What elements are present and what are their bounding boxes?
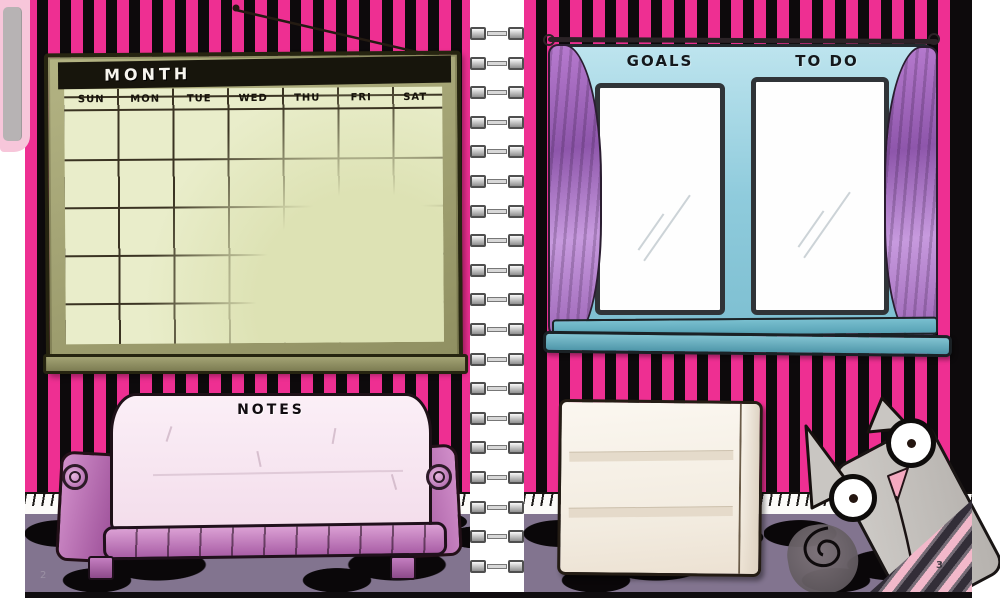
cat-pupil <box>849 494 858 503</box>
day-header-tue: TUE <box>172 88 226 108</box>
planner-spread: MONTH SUN MON TUE WED THU FRI SAT GOALS … <box>0 0 1000 598</box>
couch-sketch-mark <box>166 426 173 442</box>
couch-backrest: NOTES <box>110 393 432 533</box>
binding-ring-icon <box>470 86 524 99</box>
goals-pane <box>595 83 725 315</box>
goals-label: GOALS <box>595 52 725 70</box>
page-number-right: 3 <box>936 560 943 571</box>
binding-ring-icon <box>470 353 524 366</box>
binding-ring-icon <box>470 234 524 247</box>
binding-ring-icon <box>470 323 524 336</box>
bottom-bar <box>25 592 972 598</box>
calendar-title: MONTH <box>104 64 191 85</box>
binding-ring-icon <box>470 441 524 454</box>
dresser-side-panel <box>738 404 760 574</box>
binding-ring-icon <box>470 27 524 40</box>
couch-sketch-mark <box>332 428 337 444</box>
glass-reflection <box>638 213 665 250</box>
cat-nose <box>888 468 908 502</box>
calendar-title-band: MONTH <box>58 56 451 90</box>
drawer-divider <box>569 506 733 518</box>
day-header-row: SUN MON TUE WED THU FRI SAT <box>64 87 442 112</box>
window-ledge <box>543 331 952 357</box>
couch-label: NOTES <box>113 402 429 418</box>
binding-ring-icon <box>470 205 524 218</box>
couch-crease <box>153 470 403 476</box>
glass-reflection <box>643 195 691 262</box>
binding-ring-icon <box>470 293 524 306</box>
couch-sketch-mark <box>256 451 261 467</box>
binding-ring-icon <box>470 560 524 573</box>
binding-ring-icon <box>470 175 524 188</box>
drawer-divider <box>569 450 733 462</box>
cat-eye-right <box>886 418 936 468</box>
couch-sketch-mark <box>391 474 397 490</box>
day-header-mon: MON <box>118 89 172 109</box>
page-number-left: 2 <box>40 570 46 581</box>
todo-pane <box>751 77 889 315</box>
month-calendar-frame: MONTH SUN MON TUE WED THU FRI SAT <box>44 51 463 374</box>
binding-ring-icon <box>470 57 524 70</box>
binding-ring-icon <box>470 471 524 484</box>
day-header-sat: SAT <box>388 87 442 107</box>
couch-arm-scroll-right-icon <box>426 464 452 490</box>
rod-end-right-icon <box>928 33 940 45</box>
binding-ring-icon <box>470 501 524 514</box>
couch-front-rail <box>103 522 447 561</box>
glass-reflection <box>797 211 824 248</box>
todo-label: TO DO <box>757 52 897 70</box>
day-header-thu: THU <box>280 87 334 107</box>
day-header-sun: SUN <box>64 89 118 109</box>
dresser <box>557 399 763 577</box>
goals-todo-window: GOALS TO DO <box>558 44 932 322</box>
cat-tail-swirl <box>805 528 839 566</box>
binding-ring-icon <box>470 145 524 158</box>
day-header-fri: FRI <box>334 87 388 107</box>
couch-leg-right <box>390 556 416 580</box>
index-tab <box>3 7 22 141</box>
cat-pupil <box>907 439 916 448</box>
binding-ring-icon <box>470 530 524 543</box>
day-header-wed: WED <box>226 88 280 108</box>
cat-eye-left <box>829 474 877 522</box>
binding-ring-icon <box>470 116 524 129</box>
glass-reflection <box>804 191 852 258</box>
binding-ring-icon <box>470 264 524 277</box>
spiral-binding <box>470 0 524 594</box>
couch-arm-scroll-left-icon <box>62 464 88 490</box>
calendar-grid: SUN MON TUE WED THU FRI SAT <box>64 87 444 345</box>
binding-ring-icon <box>470 382 524 395</box>
binding-ring-icon <box>470 412 524 425</box>
couch-leg-left <box>88 556 114 580</box>
calendar-bottom-ledge <box>43 354 468 374</box>
